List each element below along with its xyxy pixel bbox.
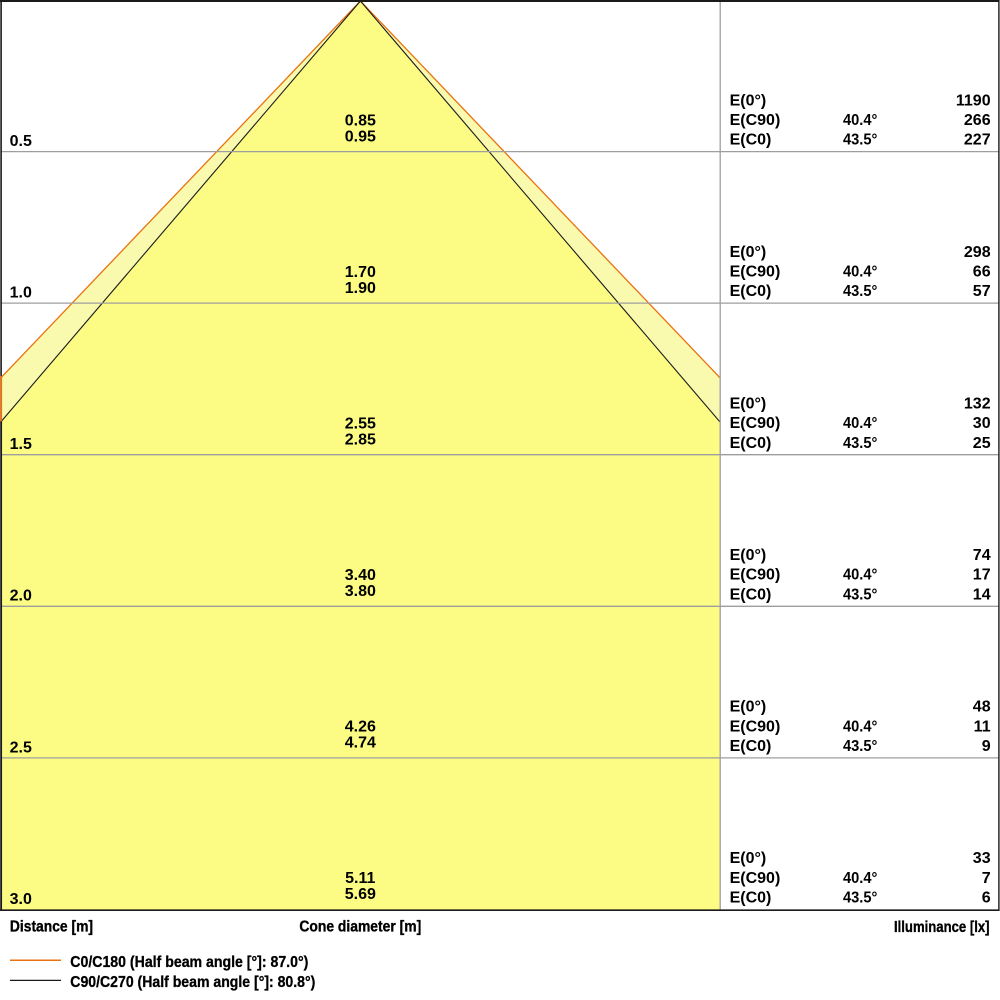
svg-text:43.5°: 43.5° [843,435,877,452]
svg-text:40.4°: 40.4° [843,264,877,281]
svg-text:40.4°: 40.4° [843,718,877,735]
svg-text:E(0°): E(0°) [730,395,767,412]
svg-text:E(C0): E(C0) [730,435,772,452]
svg-text:1.90: 1.90 [345,280,376,297]
svg-text:74: 74 [973,547,991,564]
svg-text:3.0: 3.0 [10,891,32,908]
svg-text:30: 30 [973,415,991,432]
svg-text:40.4°: 40.4° [843,567,877,584]
svg-text:227: 227 [964,132,991,149]
svg-text:14: 14 [973,586,991,603]
svg-text:3.40: 3.40 [345,567,376,584]
svg-text:1.0: 1.0 [10,285,32,302]
svg-text:40.4°: 40.4° [843,870,877,887]
svg-text:E(C0): E(C0) [730,283,772,300]
svg-text:C0/C180 (Half beam angle [°]:: C0/C180 (Half beam angle [°]: 87.0°) [70,954,308,971]
svg-text:Cone diameter [m]: Cone diameter [m] [299,919,421,936]
svg-text:43.5°: 43.5° [843,890,877,907]
svg-text:1190: 1190 [956,92,991,109]
svg-text:E(0°): E(0°) [730,244,767,261]
svg-text:266: 266 [964,112,991,129]
svg-text:0.95: 0.95 [345,128,376,145]
svg-text:E(C0): E(C0) [730,738,772,755]
svg-text:5.11: 5.11 [345,870,375,887]
svg-text:7: 7 [982,870,991,887]
svg-text:E(C90): E(C90) [730,870,781,887]
svg-text:43.5°: 43.5° [843,283,877,300]
svg-text:5.69: 5.69 [345,886,376,903]
svg-text:40.4°: 40.4° [843,112,877,129]
svg-text:2.5: 2.5 [10,739,32,756]
svg-text:17: 17 [973,567,991,584]
svg-text:9: 9 [982,738,991,755]
svg-text:4.26: 4.26 [345,719,376,736]
svg-text:4.74: 4.74 [345,735,376,752]
svg-text:E(0°): E(0°) [730,699,767,716]
svg-text:3.80: 3.80 [345,583,376,600]
svg-text:43.5°: 43.5° [843,738,877,755]
svg-text:6: 6 [982,890,991,907]
svg-text:E(C0): E(C0) [730,890,772,907]
svg-text:E(C0): E(C0) [730,132,772,149]
svg-text:E(C90): E(C90) [730,415,781,432]
svg-text:48: 48 [973,699,991,716]
svg-text:E(C90): E(C90) [730,264,781,281]
svg-text:298: 298 [964,244,991,261]
svg-text:E(0°): E(0°) [730,850,767,867]
svg-text:2.55: 2.55 [345,416,376,433]
svg-text:E(0°): E(0°) [730,547,767,564]
svg-text:40.4°: 40.4° [843,415,877,432]
svg-text:57: 57 [973,283,991,300]
svg-text:E(C0): E(C0) [730,586,772,603]
svg-text:E(0°): E(0°) [730,92,767,109]
svg-text:1.70: 1.70 [345,264,376,281]
svg-text:43.5°: 43.5° [843,586,877,603]
svg-text:0.85: 0.85 [345,112,376,129]
svg-text:33: 33 [973,850,991,867]
svg-text:132: 132 [964,395,991,412]
svg-text:43.5°: 43.5° [843,132,877,149]
svg-text:C90/C270 (Half beam angle [°]:: C90/C270 (Half beam angle [°]: 80.8°) [70,974,315,991]
svg-text:2.0: 2.0 [10,588,32,605]
svg-text:1.5: 1.5 [10,436,32,453]
svg-text:0.5: 0.5 [10,133,32,150]
svg-text:E(C90): E(C90) [730,112,781,129]
svg-text:Distance [m]: Distance [m] [10,919,93,936]
svg-text:Illuminance [lx]: Illuminance [lx] [894,919,990,936]
svg-text:66: 66 [973,264,991,281]
svg-text:E(C90): E(C90) [730,567,781,584]
svg-text:25: 25 [973,435,991,452]
svg-text:2.85: 2.85 [345,432,376,449]
svg-text:E(C90): E(C90) [730,718,781,735]
svg-text:11: 11 [974,718,991,735]
